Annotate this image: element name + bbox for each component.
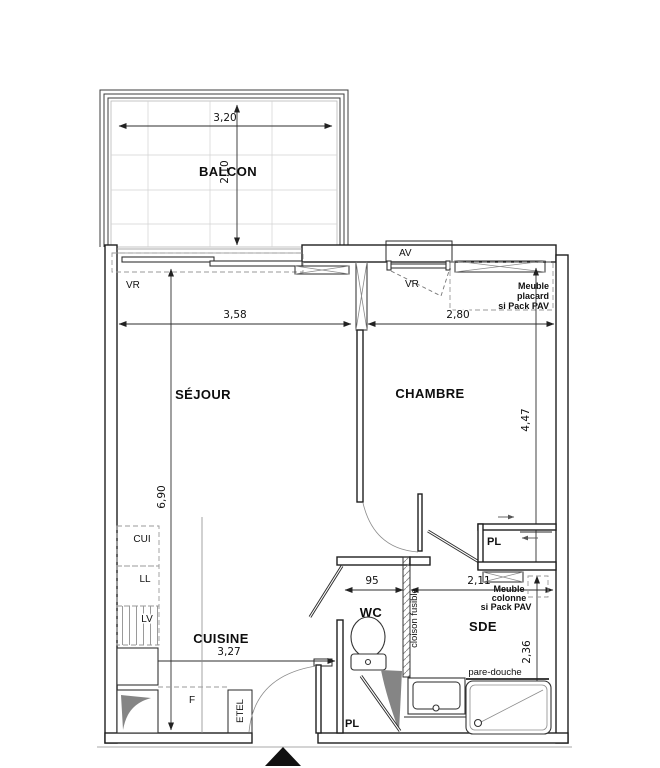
closet-chambre: PL Meuble colonne si Pack PAV (478, 517, 556, 612)
balcony: 3,20 2,10 BALCON (100, 90, 348, 247)
label-cloison-fusible: cloison fusible (409, 588, 420, 648)
wc-left-wall (337, 620, 343, 733)
kitchen-box-cui (117, 526, 159, 566)
label-pl-chambre: PL (487, 536, 501, 548)
chambre-door-leaf (418, 494, 422, 551)
note-meuble-placard-1: Meuble (518, 281, 549, 291)
room-label-chambre: CHAMBRE (395, 386, 464, 401)
closet-bottom-wall (478, 562, 556, 570)
chambre-door-swing-arc (363, 503, 418, 552)
kitchen-box-ll (117, 566, 159, 606)
wc-door-leaf-core (310, 566, 342, 617)
wall-bottom-left (105, 733, 252, 743)
dim-sejour-height: 6,90 (156, 485, 168, 508)
balcony-sliding-door: VR (112, 249, 303, 291)
label-pl-hall: PL (345, 718, 359, 730)
kitchen-units: CUI LL LV F ETEL (117, 517, 252, 733)
kitchen-box-lv (117, 606, 159, 645)
sde-zone: pare-douche (404, 667, 551, 734)
dim-sde-height: 2,36 (521, 640, 533, 664)
room-label-balcon: BALCON (199, 164, 257, 179)
room-label-cuisine: CUISINE (193, 631, 249, 646)
wc-top-wall (337, 557, 410, 565)
dim-chambre-height: 4,47 (520, 408, 532, 431)
dim-chambre-width: 2,80 (446, 309, 469, 321)
label-vr-balcony: VR (126, 280, 140, 291)
dim-sejour-width: 3,58 (223, 309, 246, 321)
dim-wc-width: 95 (365, 575, 378, 587)
floor-plan: 3,20 2,10 BALCON VR AV (0, 0, 660, 768)
room-label-sde: SDE (469, 619, 497, 634)
wall-left (105, 245, 117, 743)
wall-right (556, 255, 568, 743)
chambre-door-stub-wall (410, 557, 430, 565)
room-label-sejour: SÉJOUR (175, 387, 231, 402)
shower-drain (475, 720, 482, 727)
label-cui: CUI (133, 534, 150, 545)
wall-top (302, 245, 556, 262)
closet-door-ajar-core (428, 531, 479, 562)
room-labels: SÉJOUR CHAMBRE CUISINE WC SDE (175, 386, 497, 646)
meuble-placard-zone: Meuble placard si Pack PAV (450, 262, 553, 311)
entrance-marker-triangle (265, 747, 301, 766)
slider-panel-right (210, 261, 302, 266)
partition-sejour-chambre (356, 262, 367, 502)
note-meuble-placard-3: si Pack PAV (498, 301, 549, 311)
chambre-door (363, 494, 479, 565)
label-etel: ETEL (235, 699, 246, 723)
hall-entrance: PL (249, 659, 402, 766)
label-pare-douche: pare-douche (468, 667, 521, 678)
entrance-door-swing-arc (249, 666, 316, 732)
label-fridge: F (189, 695, 195, 706)
dim-balcony-width: 3,20 (213, 112, 236, 124)
label-ll: LL (139, 574, 151, 585)
note-meuble-colonne-3: si Pack PAV (481, 602, 532, 612)
partition-wall (357, 330, 363, 502)
slider-panel-left (122, 257, 214, 262)
toilet-flush-button (366, 660, 371, 665)
toilet-bowl (351, 617, 385, 657)
window-cap-right (446, 261, 450, 270)
window-cap-left (387, 261, 391, 270)
label-vr-window: VR (405, 279, 419, 290)
dim-cuisine-width: 3,27 (217, 646, 240, 658)
kitchen-base-unit (117, 648, 158, 685)
note-meuble-placard-2: placard (517, 291, 549, 301)
label-av: AV (399, 248, 412, 259)
sink-faucet (433, 705, 439, 711)
closet-top-wall (478, 524, 556, 530)
entrance-door-leaf (316, 665, 321, 733)
window-swing-dashed (391, 271, 449, 296)
sde-door-shade (381, 670, 402, 731)
label-lv: LV (141, 614, 153, 625)
meuble-colonne-outline (528, 576, 548, 597)
